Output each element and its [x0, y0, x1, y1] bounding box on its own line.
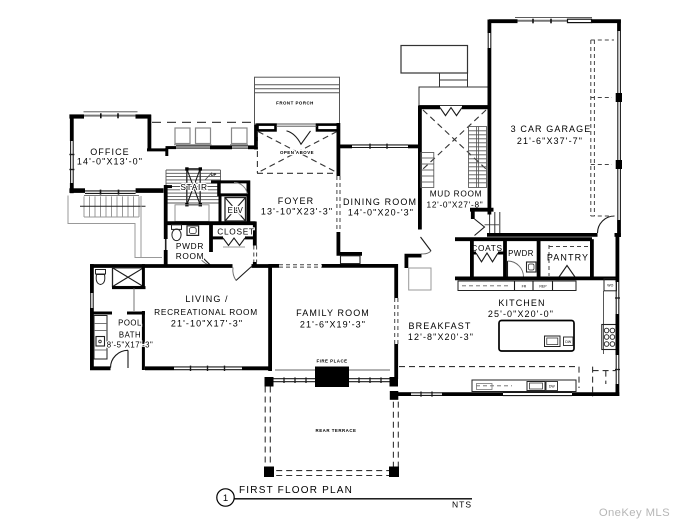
svg-text:OPEN ABOVE: OPEN ABOVE: [280, 150, 314, 155]
svg-text:13'-10"X23'-3": 13'-10"X23'-3": [261, 207, 333, 217]
svg-text:3 CAR GARAGE: 3 CAR GARAGE: [511, 124, 592, 134]
svg-text:RECREATIONAL ROOM: RECREATIONAL ROOM: [154, 307, 258, 317]
svg-text:MUD ROOM: MUD ROOM: [430, 189, 483, 199]
svg-text:FIRST FLOOR PLAN: FIRST FLOOR PLAN: [239, 485, 353, 496]
svg-text:REAR TERRACE: REAR TERRACE: [316, 428, 357, 433]
svg-text:STAIR: STAIR: [180, 182, 207, 192]
svg-text:DW: DW: [565, 340, 572, 344]
svg-text:CLOSET: CLOSET: [217, 227, 254, 237]
svg-text:UP: UP: [211, 172, 217, 177]
svg-text:14'-0"X20-'3": 14'-0"X20-'3": [348, 208, 414, 218]
svg-text:FAMILY ROOM: FAMILY ROOM: [296, 308, 370, 318]
svg-text:ROOM: ROOM: [176, 251, 205, 261]
svg-text:LIVING /: LIVING /: [185, 294, 228, 304]
svg-text:POOL: POOL: [118, 319, 142, 328]
svg-text:KITCHEN: KITCHEN: [498, 298, 545, 308]
svg-text:25'-0"X20'-0": 25'-0"X20'-0": [488, 309, 554, 319]
svg-text:OneKey MLS: OneKey MLS: [599, 507, 670, 519]
svg-text:REP: REP: [539, 285, 547, 289]
svg-text:WO: WO: [607, 284, 613, 288]
svg-text:DINING ROOM: DINING ROOM: [343, 197, 417, 207]
svg-text:PWDR: PWDR: [176, 241, 204, 251]
svg-text:BREAKFAST: BREAKFAST: [409, 321, 472, 331]
svg-text:FIRE PLACE: FIRE PLACE: [316, 359, 347, 364]
svg-text:21'-10"X17'-3": 21'-10"X17'-3": [171, 319, 243, 329]
svg-text:14'-0"X13'-0": 14'-0"X13'-0": [77, 157, 143, 167]
svg-text:DW: DW: [549, 385, 556, 389]
svg-text:NTS: NTS: [452, 500, 472, 510]
svg-text:FR: FR: [522, 285, 527, 289]
svg-text:BATH: BATH: [119, 331, 141, 340]
svg-text:PANTRY: PANTRY: [547, 253, 589, 263]
svg-text:ELV: ELV: [228, 206, 244, 215]
svg-text:FOYER: FOYER: [278, 196, 315, 206]
svg-text:OFFICE: OFFICE: [90, 147, 130, 157]
svg-text:8'-5"X17'-3": 8'-5"X17'-3": [107, 341, 154, 350]
svg-text:FRONT PORCH: FRONT PORCH: [276, 101, 314, 106]
svg-text:1: 1: [223, 493, 228, 504]
svg-text:12'-8"X20'-3": 12'-8"X20'-3": [408, 332, 474, 342]
svg-text:21'-6"X19'-3": 21'-6"X19'-3": [300, 320, 366, 330]
svg-text:21'-6"X37'-7": 21'-6"X37'-7": [517, 136, 583, 146]
svg-text:PWDR: PWDR: [508, 249, 534, 258]
